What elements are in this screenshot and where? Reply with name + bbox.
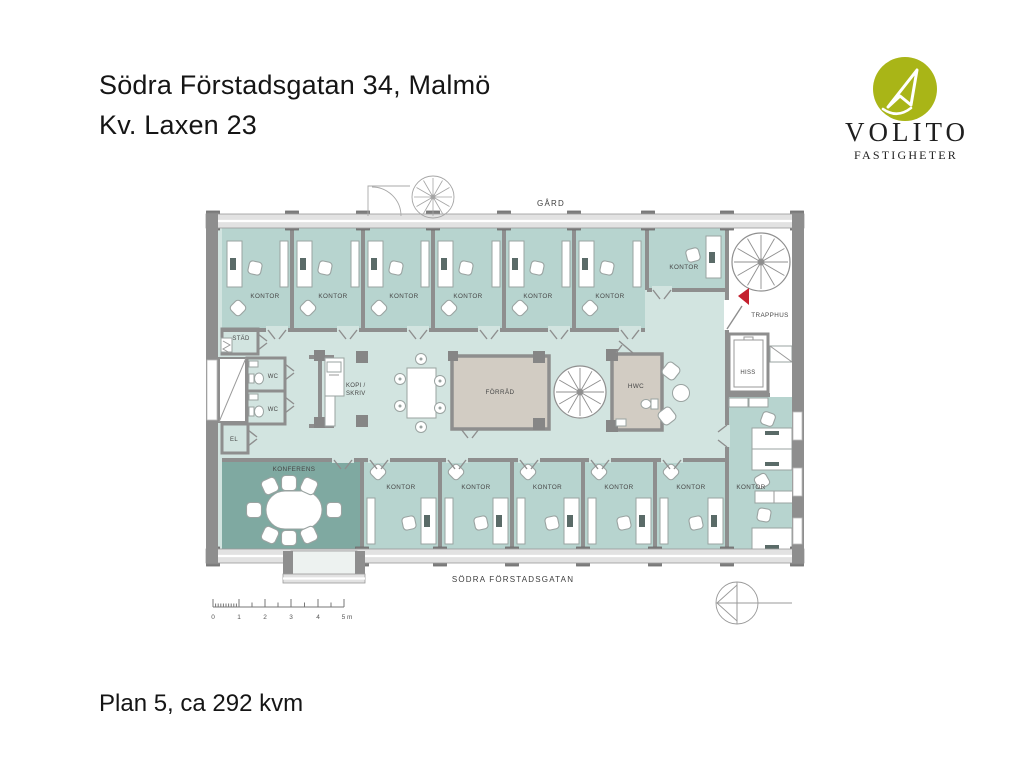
office-label: KONTOR (461, 484, 490, 491)
page: Södra Förstadsgatan 34, Malmö Kv. Laxen … (0, 0, 1024, 768)
street-label: SÖDRA FÖRSTADSGATAN (452, 575, 574, 584)
svg-text:0: 0 (211, 614, 215, 621)
electrical-label: EL (230, 437, 238, 443)
pantry-table (407, 368, 436, 418)
logo-company-name: VOLITO (845, 117, 969, 147)
office-label: KONTOR (604, 484, 633, 491)
stair-spiral-icon (732, 233, 790, 291)
office-label: KONTOR (595, 293, 624, 300)
page-title-line2: Kv. Laxen 23 (99, 110, 257, 141)
office-label: KONTOR (453, 293, 482, 300)
corner-office-label: KONTOR (669, 264, 698, 271)
inner-stair-spiral-icon (554, 366, 606, 418)
plan-caption: Plan 5, ca 292 kvm (99, 690, 303, 718)
floorplan: KONTORKONTORKONTORKONTORKONTORKONTORKONT… (190, 165, 830, 640)
office-label: KONTOR (676, 484, 705, 491)
office-label: KONTOR (533, 484, 562, 491)
accessible-wc-label: HWC (628, 383, 644, 390)
stairwell-label: TRAPPHUS (751, 312, 789, 319)
office-label: KONTOR (389, 293, 418, 300)
elevator-label: HISS (740, 370, 755, 376)
conference-table (266, 491, 322, 529)
logo-division-name: FASTIGHETER (854, 148, 958, 162)
svg-text:1: 1 (237, 614, 241, 621)
office-label: KONTOR (318, 293, 347, 300)
courtyard-label: GÅRD (537, 199, 565, 208)
svg-text:4: 4 (316, 614, 320, 621)
right-office-label: KONTOR (736, 484, 765, 491)
storage-label: FÖRRÅD (486, 387, 515, 396)
svg-text:3: 3 (289, 614, 293, 621)
copy-room-label-2: SKRIV (346, 391, 366, 397)
bay-window (283, 551, 365, 583)
page-title-line1: Södra Förstadsgatan 34, Malmö (99, 70, 491, 101)
exterior-stair (368, 176, 454, 218)
elevator-shaft (729, 334, 768, 392)
office-label: KONTOR (523, 293, 552, 300)
wc1-label: WC (268, 374, 279, 380)
conference-label: KONFERENS (273, 466, 316, 473)
svg-text:5 m: 5 m (342, 614, 353, 621)
company-logo: VOLITO FASTIGHETER (840, 50, 975, 168)
office-label: KONTOR (250, 293, 279, 300)
wc2-label: WC (268, 407, 279, 413)
north-compass-icon (716, 582, 792, 624)
svg-text:2: 2 (263, 614, 267, 621)
office-label: KONTOR (386, 484, 415, 491)
cleaning-label: STÄD (232, 335, 250, 342)
scale-bar: 0 1 2 3 4 5 m (211, 599, 352, 621)
copy-room-label-1: KOPI / (346, 383, 366, 389)
